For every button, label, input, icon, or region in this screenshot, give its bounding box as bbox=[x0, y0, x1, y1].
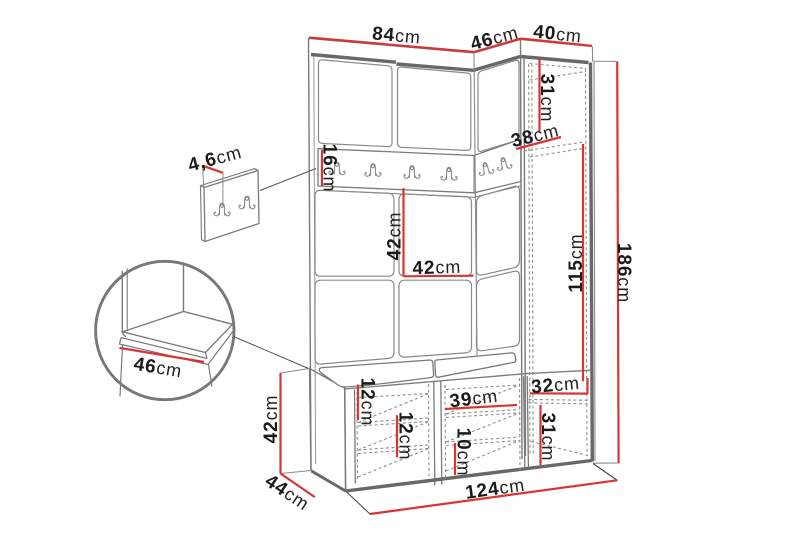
svg-text:16cm: 16cm bbox=[319, 144, 340, 193]
svg-text:42cm: 42cm bbox=[412, 257, 461, 280]
svg-text:10cm: 10cm bbox=[453, 428, 474, 477]
svg-text:186cm: 186cm bbox=[613, 243, 634, 303]
svg-text:31cm: 31cm bbox=[536, 74, 557, 123]
svg-text:115cm: 115cm bbox=[566, 233, 587, 292]
svg-text:12cm: 12cm bbox=[357, 378, 378, 427]
svg-text:42cm: 42cm bbox=[261, 395, 282, 444]
svg-text:31cm: 31cm bbox=[537, 413, 558, 462]
svg-text:12cm: 12cm bbox=[395, 412, 416, 461]
svg-text:42cm: 42cm bbox=[385, 212, 406, 261]
svg-text:84cm: 84cm bbox=[371, 23, 421, 48]
